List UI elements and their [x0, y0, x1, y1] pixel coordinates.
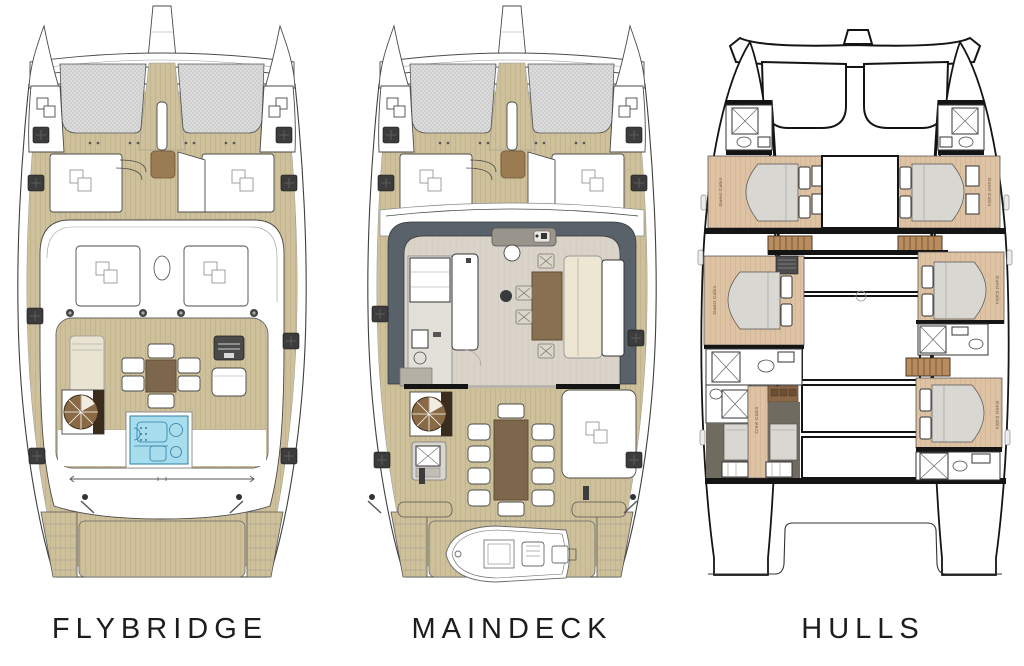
sunbed	[70, 336, 104, 394]
tender-dinghy	[446, 526, 576, 582]
cabin-label: Guest Cabin	[712, 285, 718, 314]
stern-bench-starboard	[572, 502, 626, 517]
port-forward-guest-cabin: Guest Cabin	[708, 156, 825, 228]
salon-table	[532, 272, 562, 340]
port-mid-guest-cabin: Guest Cabin	[704, 256, 804, 345]
cockpit-grill	[412, 442, 446, 480]
galley-island	[452, 254, 478, 350]
cockpit-dining-table	[494, 420, 528, 500]
bar-seat	[212, 368, 246, 396]
cabin-label: Guest Cabin	[986, 178, 992, 207]
salon	[388, 222, 636, 389]
bridgedeck-port-lobe	[762, 62, 846, 128]
salon-sofa	[564, 256, 602, 358]
maindeck-title: MAINDECK	[362, 607, 662, 651]
starboard-aft-bathroom	[916, 452, 1000, 480]
port-mid-bathroom	[706, 349, 802, 385]
mast-stub	[844, 30, 872, 44]
hulls-title: HULLS	[713, 607, 1013, 651]
starboard-forward-guest-cabin: Guest Cabin	[888, 156, 1000, 228]
cabin-label: Guest Cabin	[994, 276, 1000, 305]
hulls-plan: Guest Cabin Guest Cabin Guest Cabin	[680, 0, 1024, 600]
tender-helm	[522, 542, 544, 566]
bridgedeck-starboard-lobe	[864, 62, 948, 128]
galley	[400, 256, 452, 386]
starboard-mid-bathroom	[918, 324, 988, 355]
center-forward-void	[822, 156, 898, 228]
flybridge-plan	[0, 0, 335, 600]
center-sections	[802, 258, 920, 478]
stern-bench-port	[398, 502, 452, 517]
starboard-aft-guest-cabin: Guest Cabin	[916, 378, 1002, 448]
port-aft-bathroom	[706, 385, 750, 423]
jacuzzi	[126, 412, 192, 468]
wet-bar	[214, 336, 244, 360]
starboard-mid-guest-cabin: Guest Cabin	[918, 252, 1004, 323]
flybridge-title: FLYBRIDGE	[10, 607, 310, 651]
sideboard	[400, 368, 432, 386]
catamaran-deck-plans: Guest Cabin Guest Cabin Guest Cabin	[0, 0, 1024, 666]
flybridge-table	[146, 360, 176, 392]
port-forward-bathroom	[726, 100, 772, 155]
table-leg	[500, 290, 512, 302]
starboard-forward-bathroom	[938, 100, 984, 155]
sofa-side-console	[602, 260, 624, 356]
maindeck-plan	[335, 0, 680, 600]
cabin-label: Guest Cabin	[994, 401, 1000, 430]
cabin-label: Crew Cabin	[754, 406, 760, 433]
cabin-label: Guest Cabin	[718, 177, 724, 206]
helm-seat	[504, 245, 520, 261]
